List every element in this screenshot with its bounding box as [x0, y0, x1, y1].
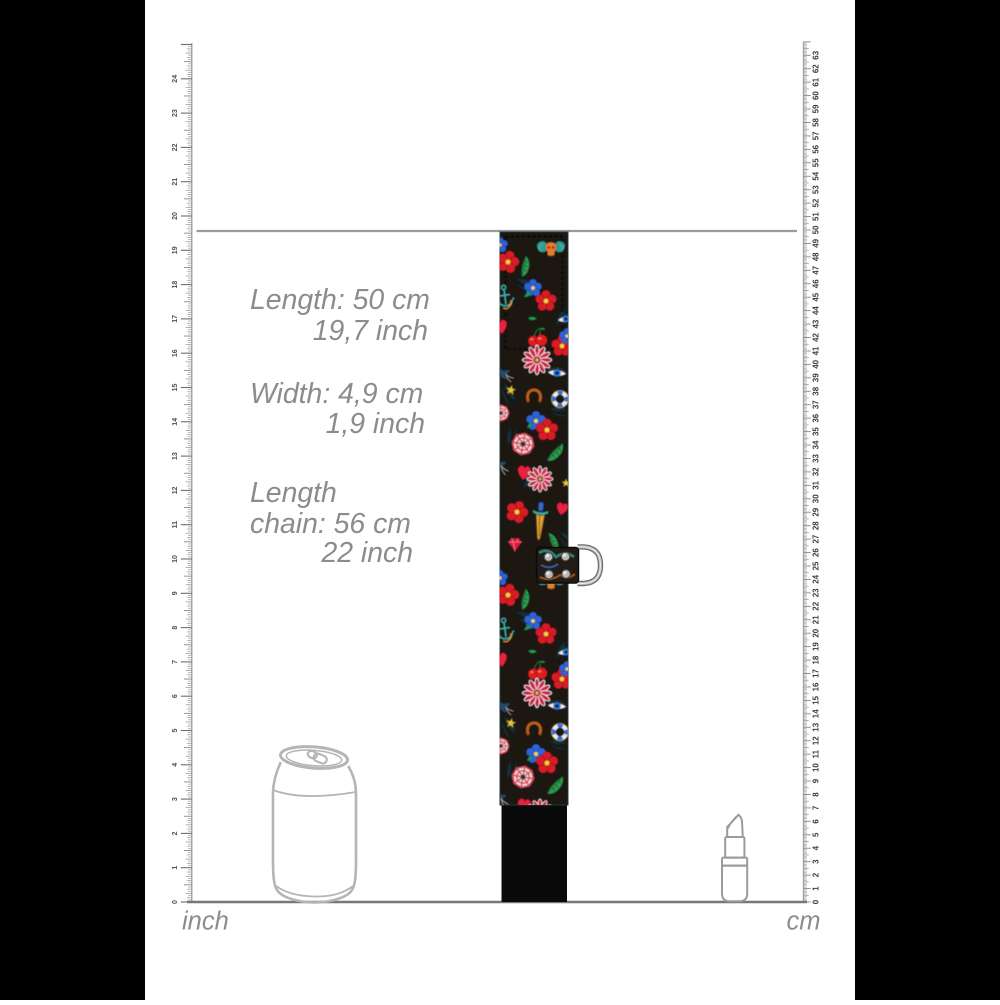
svg-text:11: 11 — [172, 521, 179, 529]
svg-text:39: 39 — [812, 373, 821, 382]
svg-text:53: 53 — [812, 185, 821, 194]
svg-text:Length: Length — [250, 477, 337, 509]
svg-text:21: 21 — [812, 615, 821, 624]
svg-text:38: 38 — [812, 386, 821, 395]
svg-text:44: 44 — [812, 306, 821, 315]
svg-text:60: 60 — [812, 91, 821, 100]
svg-text:35: 35 — [812, 427, 821, 436]
svg-text:3: 3 — [812, 859, 821, 864]
svg-text:43: 43 — [812, 319, 821, 328]
svg-text:15: 15 — [812, 695, 821, 704]
svg-text:7: 7 — [812, 805, 821, 810]
svg-text:37: 37 — [812, 400, 821, 409]
svg-text:8: 8 — [812, 792, 821, 797]
svg-text:48: 48 — [812, 252, 821, 261]
svg-text:4: 4 — [172, 763, 179, 767]
svg-text:17: 17 — [172, 315, 179, 323]
svg-text:32: 32 — [812, 467, 821, 476]
svg-text:12: 12 — [172, 486, 179, 494]
svg-text:13: 13 — [172, 452, 179, 460]
svg-text:16: 16 — [172, 349, 179, 357]
svg-text:54: 54 — [812, 171, 821, 180]
svg-text:13: 13 — [812, 722, 821, 731]
svg-text:6: 6 — [172, 694, 179, 698]
svg-text:chain: 56 cm: chain: 56 cm — [250, 508, 411, 540]
svg-text:22 inch: 22 inch — [320, 537, 413, 569]
svg-text:12: 12 — [812, 736, 821, 745]
svg-text:57: 57 — [812, 131, 821, 140]
svg-text:24: 24 — [172, 75, 179, 83]
svg-text:Length: 50 cm: Length: 50 cm — [250, 284, 430, 316]
svg-text:inch: inch — [182, 908, 229, 936]
svg-text:63: 63 — [812, 50, 821, 59]
svg-text:29: 29 — [812, 507, 821, 516]
svg-text:9: 9 — [172, 591, 179, 595]
svg-text:9: 9 — [812, 778, 821, 783]
svg-text:41: 41 — [812, 346, 821, 355]
svg-text:58: 58 — [812, 118, 821, 127]
svg-text:14: 14 — [172, 418, 179, 426]
svg-text:45: 45 — [812, 292, 821, 301]
svg-text:30: 30 — [812, 494, 821, 503]
svg-text:2: 2 — [172, 831, 179, 835]
svg-text:31: 31 — [812, 480, 821, 489]
svg-text:Width: 4,9 cm: Width: 4,9 cm — [250, 378, 423, 410]
svg-text:0: 0 — [812, 899, 821, 904]
svg-text:17: 17 — [812, 669, 821, 678]
svg-text:2: 2 — [812, 872, 821, 877]
svg-text:7: 7 — [172, 660, 179, 664]
svg-text:24: 24 — [812, 574, 821, 583]
svg-text:19,7 inch: 19,7 inch — [313, 315, 428, 347]
svg-text:22: 22 — [812, 601, 821, 610]
svg-text:18: 18 — [172, 281, 179, 289]
svg-text:61: 61 — [812, 77, 821, 86]
svg-text:55: 55 — [812, 158, 821, 167]
svg-text:33: 33 — [812, 454, 821, 463]
svg-text:19: 19 — [812, 642, 821, 651]
svg-text:cm: cm — [787, 908, 821, 936]
svg-text:4: 4 — [812, 845, 821, 850]
svg-text:21: 21 — [172, 178, 179, 186]
svg-text:15: 15 — [172, 384, 179, 392]
svg-text:42: 42 — [812, 333, 821, 342]
svg-text:51: 51 — [812, 212, 821, 221]
svg-text:50: 50 — [812, 225, 821, 234]
svg-text:5: 5 — [172, 728, 179, 732]
svg-text:20: 20 — [172, 212, 179, 220]
svg-text:19: 19 — [172, 246, 179, 254]
svg-text:6: 6 — [812, 819, 821, 824]
svg-text:56: 56 — [812, 144, 821, 153]
svg-text:14: 14 — [812, 709, 821, 718]
svg-text:5: 5 — [812, 832, 821, 837]
svg-text:11: 11 — [812, 749, 821, 758]
svg-text:49: 49 — [812, 238, 821, 247]
svg-text:1: 1 — [172, 866, 179, 870]
svg-text:10: 10 — [812, 763, 821, 772]
svg-text:47: 47 — [812, 265, 821, 274]
svg-text:22: 22 — [172, 143, 179, 151]
svg-text:27: 27 — [812, 534, 821, 543]
svg-text:46: 46 — [812, 279, 821, 288]
svg-text:40: 40 — [812, 359, 821, 368]
svg-text:62: 62 — [812, 64, 821, 73]
svg-text:36: 36 — [812, 413, 821, 422]
svg-text:34: 34 — [812, 440, 821, 449]
svg-text:8: 8 — [172, 626, 179, 630]
svg-text:16: 16 — [812, 682, 821, 691]
svg-text:23: 23 — [812, 588, 821, 597]
svg-text:10: 10 — [172, 555, 179, 563]
svg-text:25: 25 — [812, 561, 821, 570]
svg-text:0: 0 — [172, 900, 179, 904]
svg-text:28: 28 — [812, 521, 821, 530]
svg-text:3: 3 — [172, 797, 179, 801]
svg-text:18: 18 — [812, 655, 821, 664]
svg-text:26: 26 — [812, 548, 821, 557]
svg-text:1,9 inch: 1,9 inch — [326, 408, 425, 440]
svg-text:20: 20 — [812, 628, 821, 637]
svg-text:1: 1 — [812, 886, 821, 891]
svg-text:23: 23 — [172, 109, 179, 117]
svg-text:59: 59 — [812, 104, 821, 113]
svg-text:52: 52 — [812, 198, 821, 207]
